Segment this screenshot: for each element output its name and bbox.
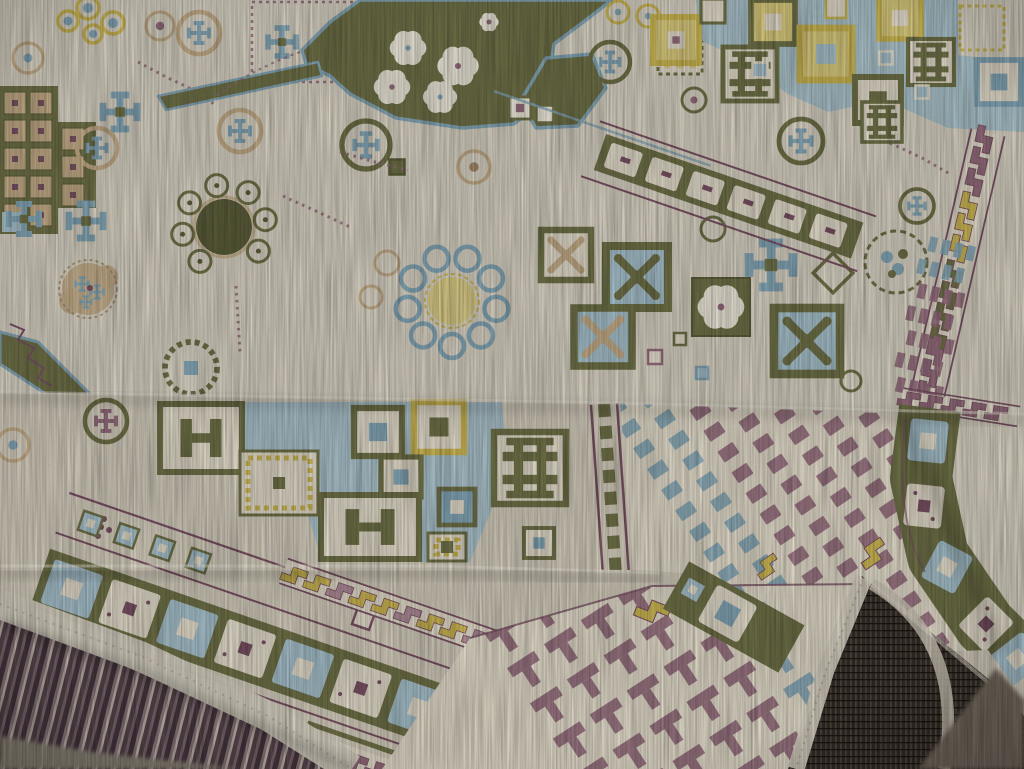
rug-photo-canvas [0,0,1024,769]
vignette [0,0,1024,769]
rug-photograph [0,0,1024,769]
